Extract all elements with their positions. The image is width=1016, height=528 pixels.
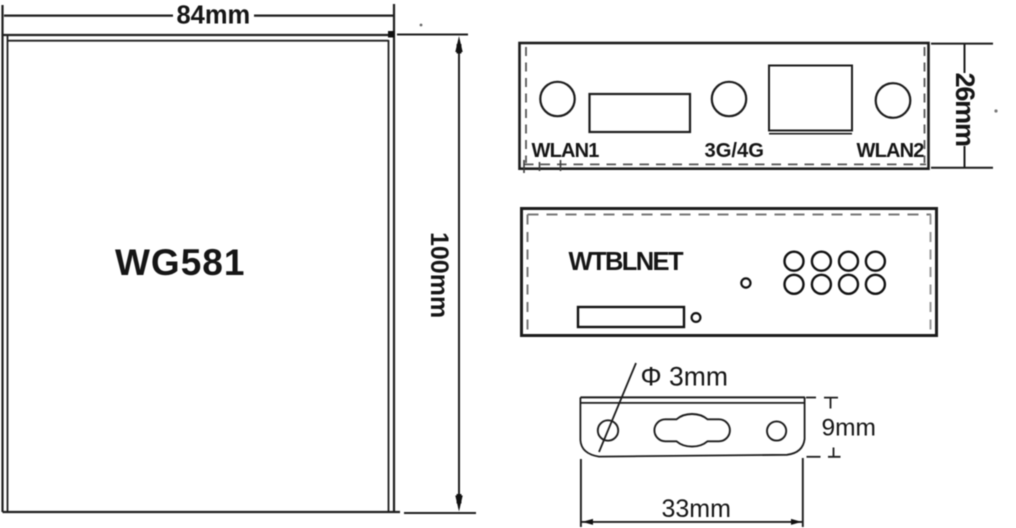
svg-text:WG581: WG581 (115, 242, 245, 283)
svg-text:33mm: 33mm (662, 495, 731, 523)
svg-text:WLAN1: WLAN1 (532, 140, 600, 162)
svg-text:9mm: 9mm (822, 415, 876, 442)
svg-text:WTBLNET: WTBLNET (569, 248, 684, 276)
svg-text:Φ 3mm: Φ 3mm (641, 362, 728, 392)
svg-text:3G/4G: 3G/4G (705, 140, 764, 162)
svg-text:WLAN2: WLAN2 (857, 140, 925, 162)
svg-text:84mm: 84mm (177, 2, 251, 30)
svg-text:26mm: 26mm (950, 73, 980, 146)
svg-text:100mm: 100mm (425, 232, 453, 318)
